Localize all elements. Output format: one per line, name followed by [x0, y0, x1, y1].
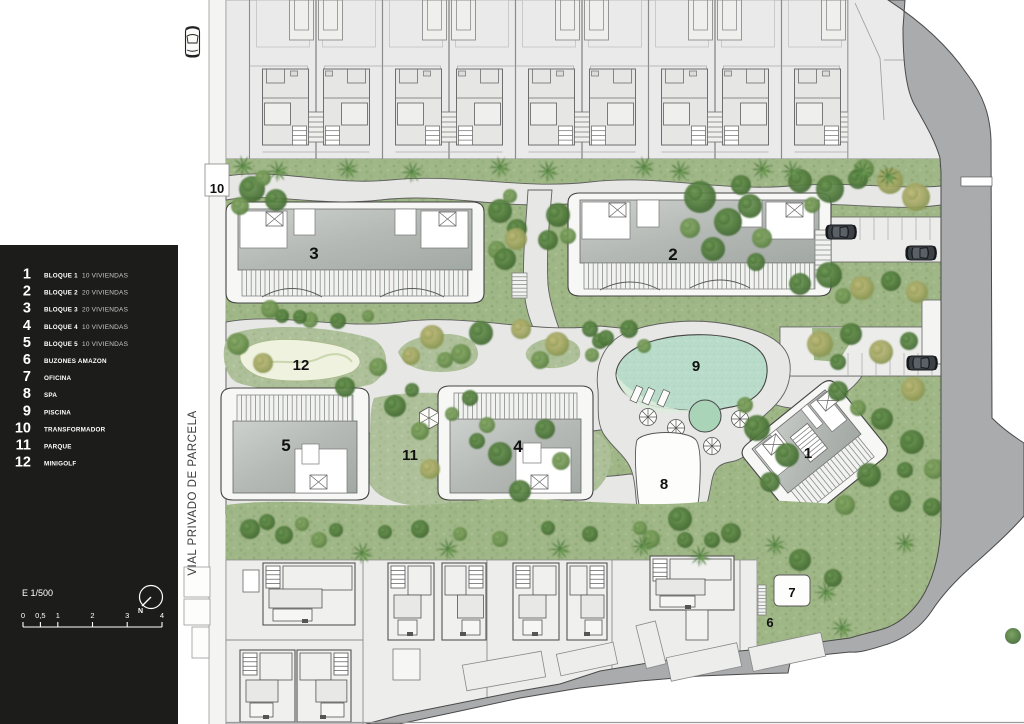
svg-text:20 VIVIENDAS: 20 VIVIENDAS	[82, 307, 129, 314]
svg-text:TRANSFORMADOR: TRANSFORMADOR	[44, 426, 106, 433]
svg-text:10 VIVIENDAS: 10 VIVIENDAS	[82, 341, 129, 348]
svg-text:6: 6	[23, 352, 31, 368]
svg-text:BLOQUE 3: BLOQUE 3	[44, 307, 78, 314]
svg-text:E 1/500: E 1/500	[22, 588, 53, 598]
svg-text:8: 8	[23, 386, 31, 402]
svg-text:VIAL PRIVADO DE PARCELA: VIAL PRIVADO DE PARCELA	[187, 410, 199, 575]
svg-text:5: 5	[23, 335, 31, 351]
svg-text:12: 12	[15, 455, 31, 471]
svg-text:0: 0	[21, 611, 25, 620]
svg-text:MINIGOLF: MINIGOLF	[44, 461, 76, 468]
svg-text:BLOQUE 2: BLOQUE 2	[44, 290, 78, 297]
svg-text:10 VIVIENDAS: 10 VIVIENDAS	[82, 324, 129, 331]
svg-text:2: 2	[668, 245, 677, 264]
svg-text:10 VIVIENDAS: 10 VIVIENDAS	[82, 273, 129, 280]
svg-text:10: 10	[15, 420, 31, 436]
svg-text:11: 11	[16, 438, 31, 454]
svg-text:BLOQUE 1: BLOQUE 1	[44, 273, 78, 280]
svg-text:7: 7	[788, 585, 795, 600]
svg-text:BLOQUE 4: BLOQUE 4	[44, 324, 78, 331]
svg-text:12: 12	[293, 357, 310, 374]
svg-text:N: N	[138, 608, 143, 615]
svg-text:20 VIVIENDAS: 20 VIVIENDAS	[82, 290, 129, 297]
svg-text:3: 3	[23, 301, 31, 317]
svg-text:9: 9	[692, 358, 700, 375]
svg-text:3: 3	[309, 244, 318, 263]
svg-text:BUZONES AMAZON: BUZONES AMAZON	[44, 358, 107, 365]
svg-text:11: 11	[402, 447, 418, 464]
svg-text:10: 10	[210, 181, 224, 196]
svg-text:SPA: SPA	[44, 392, 57, 399]
svg-text:1: 1	[804, 445, 812, 462]
svg-text:3: 3	[125, 611, 129, 620]
svg-text:BLOQUE 5: BLOQUE 5	[44, 341, 78, 348]
svg-text:2: 2	[90, 611, 94, 620]
svg-text:PISCINA: PISCINA	[44, 409, 71, 416]
svg-text:1: 1	[56, 611, 60, 620]
svg-text:1: 1	[23, 267, 31, 283]
svg-text:PARQUE: PARQUE	[44, 444, 72, 451]
svg-text:9: 9	[23, 403, 31, 419]
svg-text:8: 8	[660, 476, 668, 493]
svg-text:4: 4	[160, 611, 164, 620]
svg-text:6: 6	[766, 615, 773, 630]
svg-text:4: 4	[23, 318, 31, 334]
svg-text:7: 7	[23, 369, 31, 385]
svg-text:OFICINA: OFICINA	[44, 375, 72, 382]
svg-text:2: 2	[23, 284, 31, 300]
svg-text:4: 4	[513, 437, 523, 456]
svg-text:5: 5	[281, 436, 290, 455]
svg-text:0,5: 0,5	[35, 611, 45, 620]
